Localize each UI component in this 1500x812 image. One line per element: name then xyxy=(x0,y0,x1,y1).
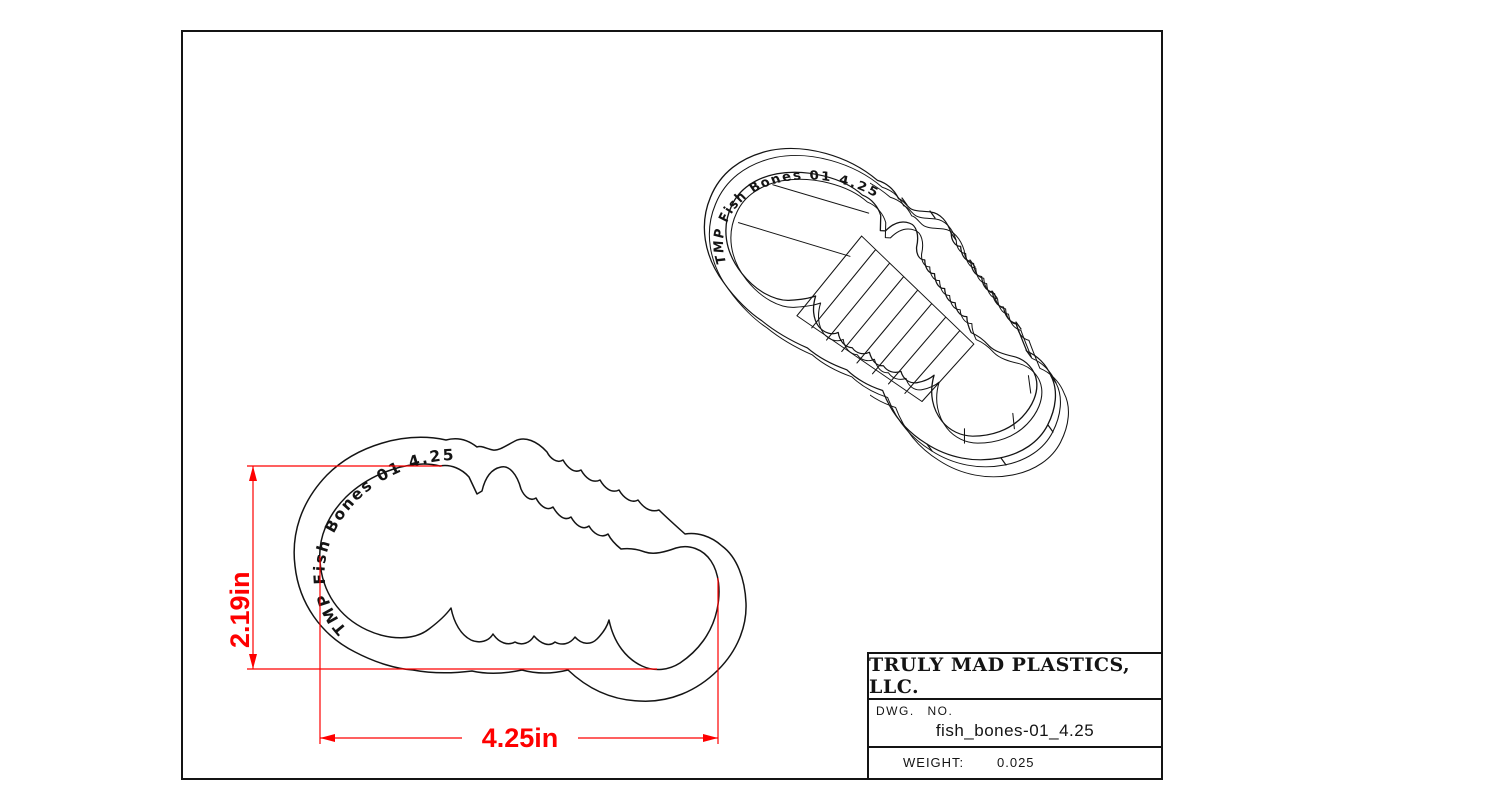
iso-rim-bottom xyxy=(662,117,1117,499)
plan-outer-outline xyxy=(294,437,746,701)
width-extension-lines xyxy=(320,556,718,744)
width-dimension-label: 4.25in xyxy=(482,723,559,753)
plan-embossed-text: TMP Fish Bones 01 4.25 xyxy=(310,446,456,639)
company-name: TRULY MAD PLASTICS, LLC. xyxy=(869,654,1161,700)
weight-label: WEIGHT: xyxy=(903,755,964,770)
dwg-no-label: DWG. NO. xyxy=(876,704,953,718)
width-dimension: 4.25in xyxy=(320,556,718,753)
weight-row: WEIGHT: 0.025 xyxy=(869,748,1161,778)
height-extension-lines xyxy=(247,466,657,669)
iso-rim-ticks xyxy=(902,198,1056,465)
iso-view: TMP Fish Bones 01 4.25 xyxy=(657,110,1125,509)
dwg-no-value: fish_bones-01_4.25 xyxy=(869,721,1161,741)
iso-rim-bottom-outer xyxy=(662,117,1117,499)
height-dimension-label: 2.19in xyxy=(225,571,255,648)
arrow-up-icon xyxy=(249,466,257,481)
height-dimension: 2.19in xyxy=(225,466,657,669)
plan-view: TMP Fish Bones 01 4.25 xyxy=(294,437,746,701)
drawing-canvas: TMP Fish Bones 01 4.25 2.19in 4.25in xyxy=(0,0,1500,812)
plan-inner-outline xyxy=(320,464,719,669)
iso-embossed-text: TMP Fish Bones 01 4.25 xyxy=(695,124,882,318)
dwg-no-row: DWG. NO. fish_bones-01_4.25 xyxy=(869,700,1161,748)
title-block: TRULY MAD PLASTICS, LLC. DWG. NO. fish_b… xyxy=(867,652,1163,780)
arrow-left-icon xyxy=(320,734,335,742)
iso-outer-outline xyxy=(657,110,1112,492)
drawing-sheet: TMP Fish Bones 01 4.25 2.19in 4.25in xyxy=(0,0,1500,812)
iso-base-outline xyxy=(670,127,1125,509)
arrow-right-icon xyxy=(703,734,718,742)
weight-value: 0.025 xyxy=(997,755,1035,770)
iso-top-rim: TMP Fish Bones 01 4.25 xyxy=(657,110,1112,492)
arrow-down-icon xyxy=(249,654,257,669)
